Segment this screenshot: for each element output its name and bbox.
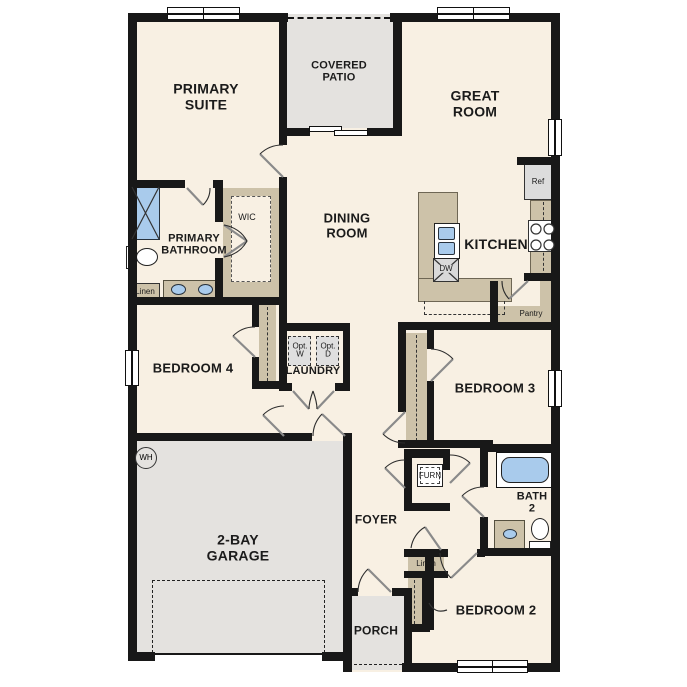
door-leaf — [451, 553, 477, 578]
label-porch: PORCH — [354, 624, 398, 637]
label-linen-foyer: Linen — [416, 560, 436, 568]
water-heater-label: WH — [139, 454, 152, 462]
door-arc — [358, 569, 368, 592]
door-leaf — [450, 463, 470, 483]
label-laundry: LAUNDRY — [286, 365, 341, 377]
door-leaf — [425, 527, 441, 550]
door-leaf — [509, 281, 528, 299]
door-leaf — [383, 412, 405, 434]
door-leaf — [224, 225, 247, 241]
label-bedroom2: BEDROOM 2 — [456, 604, 537, 619]
label-primary-bathroom: PRIMARY BATHROOM — [161, 233, 227, 258]
label-opt-dryer: Opt. D — [320, 343, 335, 360]
door-leaf — [431, 359, 453, 381]
label-garage: 2-BAY GARAGE — [207, 532, 270, 563]
door-arc — [313, 391, 317, 409]
label-foyer: FOYER — [355, 513, 397, 526]
door-arc — [383, 434, 405, 443]
floor-plan: WH — [0, 0, 687, 687]
door-leaf — [263, 415, 284, 436]
door-leaf — [260, 154, 283, 177]
door-arc — [450, 455, 470, 463]
door-arc — [233, 327, 255, 336]
door-leaf — [317, 391, 334, 409]
label-wic: WIC — [238, 212, 256, 222]
label-furnace: FURN — [419, 472, 441, 480]
burner-icon — [544, 224, 554, 234]
door-arc — [502, 281, 509, 299]
label-primary-suite: PRIMARY SUITE — [173, 81, 238, 112]
label-kitchen: KITCHEN — [464, 237, 528, 253]
label-bedroom3: BEDROOM 3 — [455, 382, 536, 397]
door-arc — [313, 414, 322, 436]
door-leaf — [385, 468, 405, 488]
label-linen-primary: Linen — [135, 288, 155, 296]
door-leaf — [368, 569, 391, 592]
door-arc — [385, 460, 405, 468]
burner-icon — [544, 240, 554, 250]
door-arc — [431, 349, 453, 359]
door-arc — [309, 391, 313, 409]
door-swing-layer — [0, 0, 687, 687]
door-leaf — [233, 336, 255, 357]
door-arc — [203, 188, 210, 205]
label-dishwasher: DW — [438, 265, 453, 273]
door-leaf — [462, 496, 484, 517]
door-arc — [462, 487, 484, 496]
door-leaf — [322, 414, 345, 436]
label-bedroom4: BEDROOM 4 — [153, 362, 234, 377]
label-covered-patio: COVERED PATIO — [311, 60, 367, 85]
door-arc — [263, 406, 284, 415]
water-heater-circle: WH — [135, 447, 157, 469]
door-arc — [411, 527, 425, 548]
door-arc — [440, 553, 451, 578]
shower-cross-icon — [132, 187, 159, 239]
label-great-room: GREAT ROOM — [451, 88, 500, 119]
bedroom2-label-leader — [429, 603, 447, 611]
label-pantry: Pantry — [519, 310, 542, 318]
burner-icon — [531, 224, 541, 234]
door-leaf — [293, 391, 309, 409]
label-refrigerator: Ref — [532, 178, 544, 186]
door-leaf — [187, 188, 203, 205]
door-leaf — [224, 241, 247, 257]
burner-icon — [531, 240, 541, 250]
label-opt-washer: Opt. W — [292, 343, 307, 360]
door-arc — [260, 145, 283, 154]
label-bath2: BATH 2 — [517, 491, 548, 516]
label-dining-room: DINING ROOM — [324, 211, 371, 240]
